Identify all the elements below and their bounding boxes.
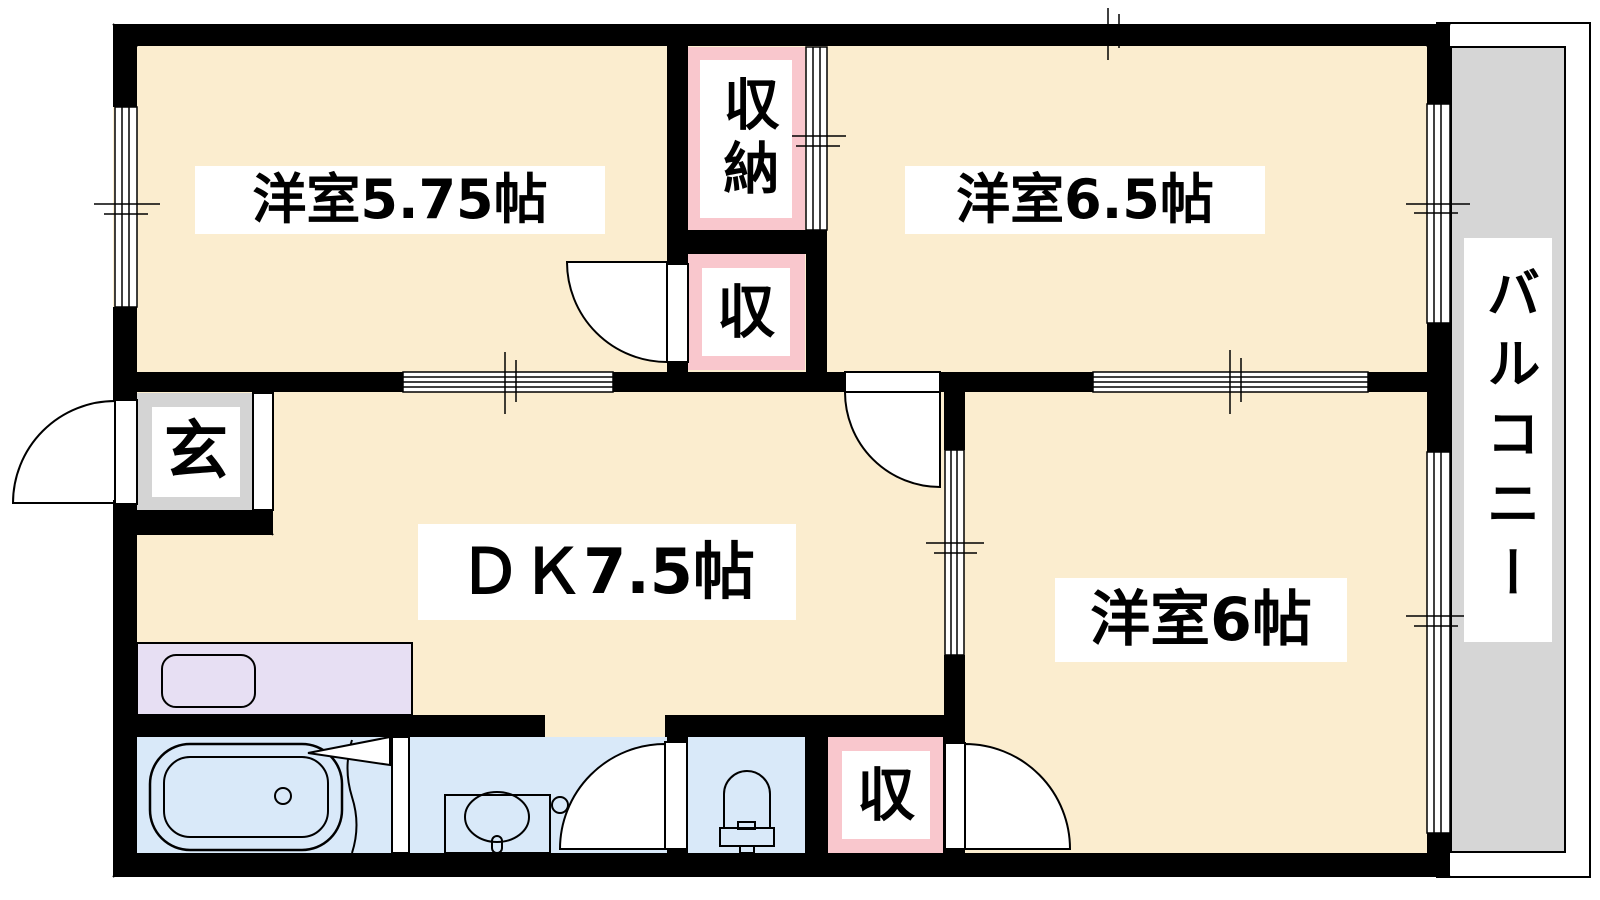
- wall-mid-h4: [1368, 372, 1427, 392]
- wall-right-3: [1427, 833, 1450, 877]
- floor-plan-drawing: [0, 0, 1600, 900]
- floor-plan: 洋室5.75帖 洋室6.5帖 ＤＫ7.5帖 洋室6帖 玄 収納 収 収 バルコニ…: [0, 0, 1600, 900]
- closet-label-shuno: 収納: [700, 60, 792, 218]
- bath-divider: [392, 737, 409, 853]
- closet-label-shu-top: 収: [702, 268, 790, 356]
- wall-dk-room6-2: [944, 655, 965, 737]
- kitchen-counter: [137, 643, 412, 715]
- wall-closet-left-2: [667, 361, 688, 392]
- wall-entry-bottom: [113, 510, 273, 535]
- room65-door-leaf: [845, 372, 940, 392]
- wall-bottom: [113, 853, 1450, 877]
- wall-top: [113, 24, 1450, 46]
- room-label-65: 洋室6.5帖: [905, 166, 1265, 234]
- wall-toilet-right: [805, 737, 828, 853]
- wall-dk-bottom-2: [665, 715, 965, 737]
- entry-label: 玄: [152, 407, 240, 497]
- room6-door-leaf: [945, 743, 965, 849]
- wall-dk-room6-1: [944, 392, 965, 450]
- washroom-door-leaf: [665, 742, 687, 849]
- wall-right-2: [1427, 323, 1450, 452]
- entry-door-leaf: [115, 400, 137, 504]
- wall-closet-mid: [667, 230, 827, 254]
- room575-door-leaf: [667, 264, 688, 362]
- wall-dk-bottom-1: [137, 715, 545, 737]
- wall-mid-h2: [613, 372, 845, 392]
- window-left: [115, 107, 137, 307]
- window-right-lower: [1427, 452, 1450, 833]
- entry-door-swing: [13, 401, 115, 503]
- wall-mid-h3: [940, 372, 1093, 392]
- wall-left-2: [113, 307, 137, 402]
- room-label-6: 洋室6帖: [1055, 578, 1347, 662]
- room-label-575: 洋室5.75帖: [195, 166, 605, 234]
- entry-side-panel: [253, 393, 273, 510]
- wall-mid-h1: [137, 372, 403, 392]
- sliding-closet: [806, 47, 827, 230]
- wall-closet-right: [806, 254, 827, 372]
- wall-left-3: [113, 500, 137, 877]
- balcony-label: バルコニー: [1464, 238, 1552, 642]
- closet-label-shu-bottom: 収: [842, 751, 930, 839]
- room-label-dk: ＤＫ7.5帖: [418, 524, 796, 620]
